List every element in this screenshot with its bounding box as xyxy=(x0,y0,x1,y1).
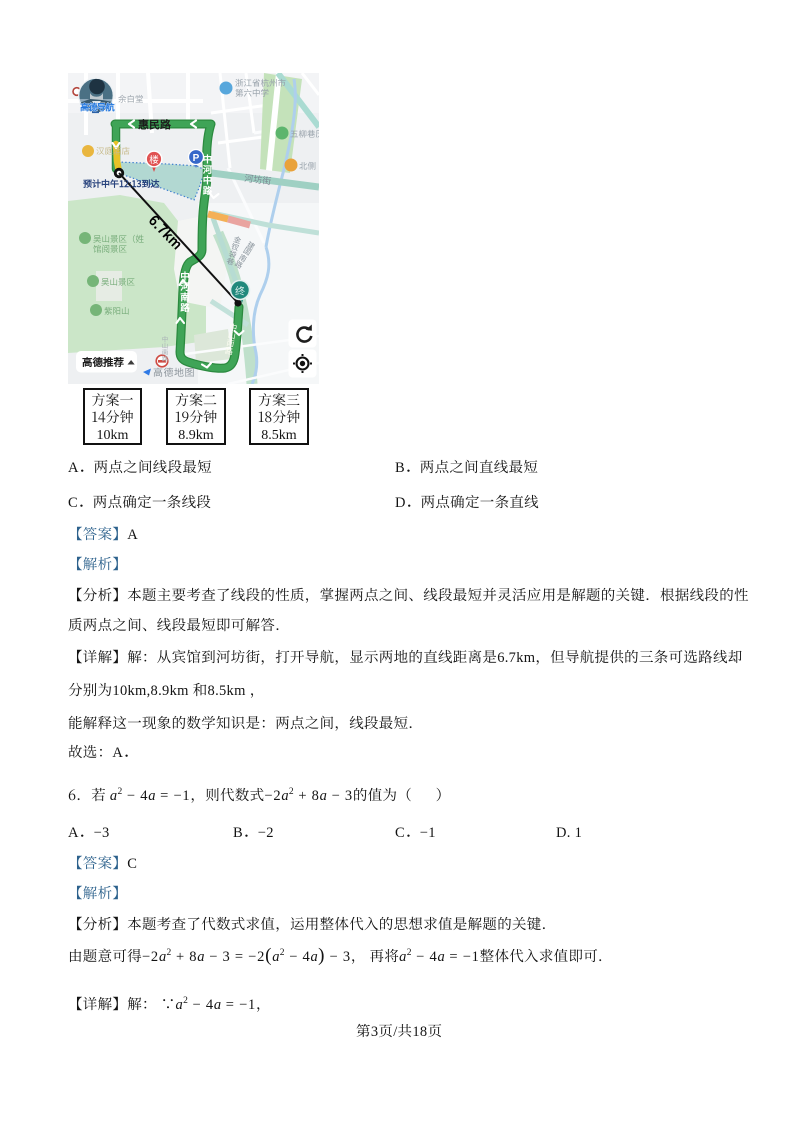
svg-text:高德地图: 高德地图 xyxy=(153,364,195,379)
svg-text:楼: 楼 xyxy=(149,152,159,166)
svg-text:中河南路: 中河南路 xyxy=(178,270,192,312)
svg-text:汉庭酒店: 汉庭酒店 xyxy=(96,145,131,157)
svg-text:五柳巷历: 五柳巷历 xyxy=(290,128,319,140)
svg-text:馆阅景区: 馆阅景区 xyxy=(93,243,128,255)
svg-text:高德推荐: 高德推荐 xyxy=(82,355,124,370)
svg-text:紫阳山: 紫阳山 xyxy=(104,305,130,317)
svg-text:高德导航: 高德导航 xyxy=(80,100,115,114)
svg-text:中山南路: 中山南路 xyxy=(160,335,170,362)
svg-text:预计中午12:13到达: 预计中午12:13到达 xyxy=(83,177,159,190)
svg-text:第六中学: 第六中学 xyxy=(235,87,270,99)
svg-text:惠民路: 惠民路 xyxy=(138,117,172,133)
svg-text:北侧: 北侧 xyxy=(299,160,316,172)
svg-text:余白堂: 余白堂 xyxy=(118,93,144,105)
svg-text:吴山景区: 吴山景区 xyxy=(101,276,136,288)
svg-text:P: P xyxy=(193,153,200,164)
svg-text:终: 终 xyxy=(235,283,245,298)
